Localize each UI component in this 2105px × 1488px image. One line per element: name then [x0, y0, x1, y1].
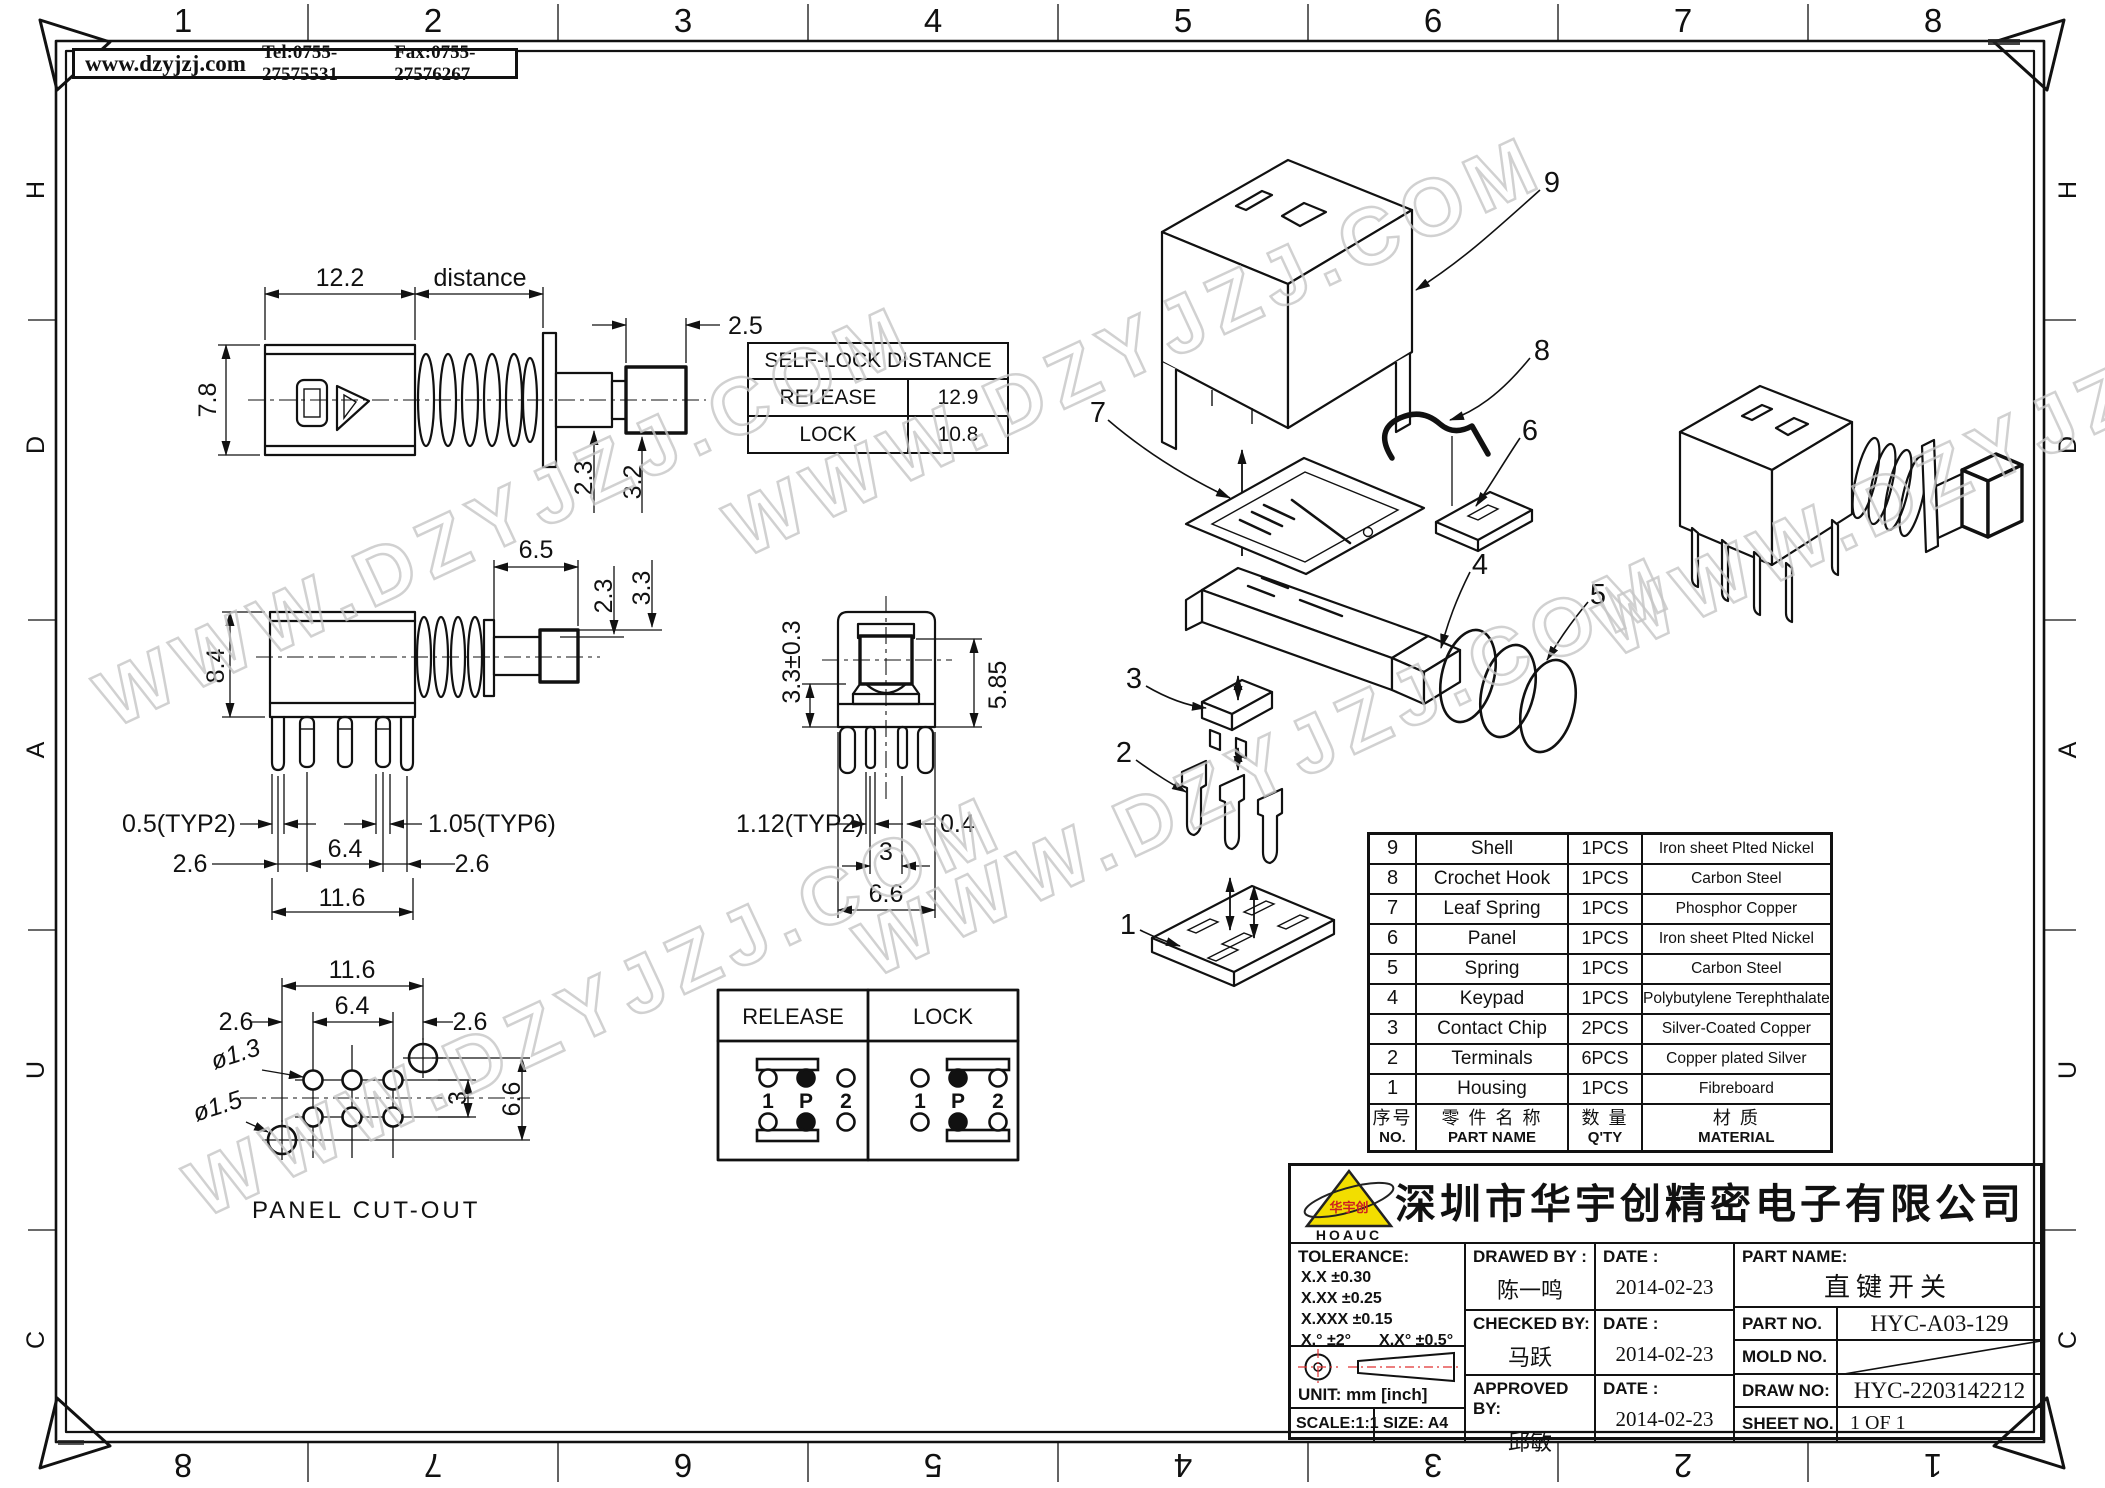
bom-no: 6 [1369, 924, 1417, 954]
approved-date: 2014-02-23 [1596, 1407, 1733, 1432]
dim-2-6-left: 2.6 [173, 850, 208, 878]
dim-1-12-typ2: 1.12(TYP2) [736, 810, 864, 838]
bom-name: Panel [1416, 924, 1568, 954]
callout-1: 1 [1120, 909, 1136, 941]
release-pin-2: 2 [840, 1090, 852, 1113]
tolerance-label: TOLERANCE: [1291, 1244, 1464, 1267]
bom-header-qty-cn: 数 量 [1569, 1107, 1641, 1129]
part-no-label-cell: PART NO. [1735, 1308, 1838, 1341]
bill-of-materials: 9Shell1PCSIron sheet Plted Nickel 8Croch… [1367, 832, 1833, 1153]
zone-left-c: C [22, 1331, 50, 1349]
part-no-label: PART NO. [1735, 1308, 1836, 1334]
bom-qty: 6PCS [1568, 1044, 1642, 1074]
bom-qty: 1PCS [1568, 954, 1642, 984]
zone-bottom-6: 6 [674, 1447, 692, 1484]
bom-material: Carbon Steel [1642, 954, 1831, 984]
bom-no: 4 [1369, 984, 1417, 1014]
bom-material: Iron sheet Plted Nickel [1642, 924, 1831, 954]
zone-right-d: D [2054, 436, 2082, 454]
circuit-state-table: RELEASE LOCK 1 P 2 1 P 2 [718, 990, 1018, 1160]
pc-dim-dia-1-5: ø1.5 [189, 1085, 245, 1127]
zone-top-5: 5 [1174, 2, 1192, 39]
draw-no-value: HYC-2203142212 [1838, 1375, 2041, 1408]
zone-top-1: 1 [174, 2, 192, 39]
zone-bottom-2: 2 [1674, 1447, 1692, 1484]
panel-cutout-title: PANEL CUT-OUT [252, 1197, 480, 1224]
bom-no: 8 [1369, 864, 1417, 894]
projection-symbols [1294, 1348, 1464, 1386]
fax: Fax:0755-27576267 [394, 42, 515, 86]
drawed-by-cell: DRAWED BY : 陈一鸣 [1466, 1244, 1596, 1311]
dim-0-5-typ2: 0.5(TYP2) [122, 810, 236, 838]
bom-name: Shell [1416, 834, 1568, 864]
unit-label: UNIT: mm [inch] [1298, 1385, 1427, 1405]
zone-left-h: H [22, 181, 50, 199]
approved-by-name: 邱敏 [1466, 1425, 1594, 1457]
checked-by-name: 马跃 [1466, 1340, 1594, 1372]
checked-by-cell: CHECKED BY: 马跃 [1466, 1311, 1596, 1376]
corner-mark-top-right [1994, 20, 2064, 90]
checked-date: 2014-02-23 [1596, 1342, 1733, 1367]
company-name: 深圳市华宇创精密电子有限公司 [1291, 1166, 2041, 1242]
table-row: 9Shell1PCSIron sheet Plted Nickel [1369, 834, 1832, 864]
bom-no: 9 [1369, 834, 1417, 864]
logo-cn-text: 华宇创 [1329, 1200, 1368, 1215]
mold-no-diagonal [1838, 1341, 2041, 1375]
bom-header-material-en: MATERIAL [1643, 1129, 1830, 1147]
callout-4: 4 [1472, 549, 1488, 581]
zone-bottom-4: 4 [1174, 1447, 1192, 1484]
part-name-label: PART NAME: [1735, 1244, 2041, 1267]
bom-header-row: 序号NO. 零 件 名 称PART NAME 数 量Q'TY 材 质MATERI… [1369, 1104, 1832, 1152]
tolerance-xx: X.X ±0.30 [1291, 1267, 1464, 1288]
bom-header-no-cn: 序号 [1370, 1107, 1415, 1129]
company-logo: 华宇创 HOAUC [1301, 1168, 1397, 1242]
zone-right-c: C [2054, 1331, 2082, 1349]
bom-material: Fibreboard [1642, 1074, 1831, 1104]
stamp-mark-top [1988, 39, 2020, 45]
part-name-value: 直键开关 [1735, 1267, 2041, 1304]
bom-name: Leaf Spring [1416, 894, 1568, 924]
bom-qty: 1PCS [1568, 864, 1642, 894]
bom-name: Terminals [1416, 1044, 1568, 1074]
table-row: 2Terminals6PCSCopper plated Silver [1369, 1044, 1832, 1074]
company-row: 华宇创 HOAUC 深圳市华宇创精密电子有限公司 [1291, 1166, 2041, 1244]
zone-bottom-1: 1 [1924, 1447, 1942, 1484]
dim-6-5: 6.5 [519, 536, 554, 564]
projection-cell: UNIT: mm [inch] [1291, 1347, 1466, 1409]
date-label: DATE : [1596, 1311, 1733, 1334]
sheet-no-label-cell: SHEET NO. [1735, 1408, 1838, 1441]
website-header-box: www.dzyjzj.com Tel:0755-27575531 Fax:075… [72, 48, 518, 79]
table-row: 4Keypad1PCSPolybutylene Terephthalate [1369, 984, 1832, 1014]
callout-2: 2 [1116, 737, 1132, 769]
mold-no-label: MOLD NO. [1735, 1341, 1836, 1367]
zone-right-h: H [2054, 181, 2082, 199]
self-lock-title: SELF-LOCK DISTANCE [748, 343, 1008, 379]
zone-right-a: A [2054, 741, 2082, 758]
assembled-view [1680, 386, 2022, 622]
bom-name: Contact Chip [1416, 1014, 1568, 1044]
bom-material: Silver-Coated Copper [1642, 1014, 1831, 1044]
table-row: 1Housing1PCSFibreboard [1369, 1074, 1832, 1104]
approved-by-cell: APPROVED BY: 邱敏 [1466, 1376, 1596, 1441]
draw-no-label: DRAW NO: [1735, 1375, 1836, 1401]
bom-header-name-en: PART NAME [1417, 1129, 1567, 1147]
dim-2-3b: 2.3 [590, 579, 618, 614]
zone-top-8: 8 [1924, 2, 1942, 39]
checked-date-cell: DATE : 2014-02-23 [1596, 1311, 1735, 1376]
pc-dim-6-4: 6.4 [335, 992, 370, 1020]
bom-name: Housing [1416, 1074, 1568, 1104]
bom-no: 2 [1369, 1044, 1417, 1074]
bom-material: Iron sheet Plted Nickel [1642, 834, 1831, 864]
zone-left-a: A [22, 741, 50, 758]
website-url: www.dzyjzj.com [85, 51, 246, 77]
release-row-label: RELEASE [748, 379, 908, 416]
date-label: DATE : [1596, 1244, 1733, 1267]
drawed-date: 2014-02-23 [1596, 1275, 1733, 1300]
bom-material: Carbon Steel [1642, 864, 1831, 894]
bom-qty: 1PCS [1568, 894, 1642, 924]
bom-header-material-cn: 材 质 [1643, 1107, 1830, 1129]
scale-cell: SCALE:1:1 [1291, 1409, 1375, 1441]
bom-material: Phosphor Copper [1642, 894, 1831, 924]
bom-no: 1 [1369, 1074, 1417, 1104]
drawed-date-cell: DATE : 2014-02-23 [1596, 1244, 1735, 1311]
dim-12-2: 12.2 [316, 264, 365, 292]
lock-row-label: LOCK [748, 416, 908, 453]
lock-pin-p: P [951, 1090, 965, 1113]
pc-dim-dia-1-3: ø1.3 [207, 1033, 263, 1075]
table-row: 5Spring1PCSCarbon Steel [1369, 954, 1832, 984]
tolerance-cell: TOLERANCE: X.X ±0.30 X.XX ±0.25 X.XXX ±0… [1291, 1244, 1466, 1347]
zone-bottom-3: 3 [1424, 1447, 1442, 1484]
zone-left-d: D [22, 436, 50, 454]
part-name-cell: PART NAME: 直键开关 [1735, 1244, 2041, 1308]
checked-by-label: CHECKED BY: [1466, 1311, 1594, 1334]
dim-0-4: 0.4 [940, 810, 975, 838]
approved-by-label: APPROVED BY: [1466, 1376, 1594, 1419]
dim-2-5: 2.5 [728, 312, 763, 340]
release-label: RELEASE [742, 1004, 844, 1029]
release-pin-p: P [799, 1090, 813, 1113]
dim-5-85: 5.85 [984, 661, 1012, 710]
bom-no: 7 [1369, 894, 1417, 924]
zone-top-2: 2 [424, 2, 442, 39]
bom-qty: 2PCS [1568, 1014, 1642, 1044]
table-row: 8Crochet Hook1PCSCarbon Steel [1369, 864, 1832, 894]
dim-6-6: 6.6 [869, 880, 904, 908]
bom-header-name-cn: 零 件 名 称 [1417, 1107, 1567, 1129]
release-pin-1: 1 [762, 1090, 774, 1113]
dim-distance: distance [433, 264, 526, 292]
dim-1-05-typ6: 1.05(TYP6) [428, 810, 556, 838]
pc-dim-3: 3 [444, 1091, 472, 1105]
sheet-no-label: SHEET NO. [1735, 1408, 1836, 1434]
zone-bottom-8: 8 [174, 1447, 192, 1484]
pc-dim-6-6: 6.6 [498, 1082, 526, 1117]
stamp-mark-bottom [58, 1440, 84, 1445]
bom-qty: 1PCS [1568, 984, 1642, 1014]
draw-no-label-cell: DRAW NO: [1735, 1375, 1838, 1408]
tolerance-xxxx: X.XXX ±0.15 [1291, 1309, 1464, 1330]
sheet-no-value: 1 OF 1 [1838, 1408, 2041, 1441]
date-label: DATE : [1596, 1376, 1733, 1399]
zone-bottom-5: 5 [924, 1447, 942, 1484]
telephone: Tel:0755-27575531 [262, 42, 378, 86]
bom-header-qty-en: Q'TY [1569, 1129, 1641, 1147]
callout-8: 8 [1534, 335, 1550, 367]
dim-11-6: 11.6 [319, 884, 366, 912]
lock-label: LOCK [913, 1004, 973, 1029]
callout-6: 6 [1522, 415, 1538, 447]
zone-top-4: 4 [924, 2, 942, 39]
bom-qty: 1PCS [1568, 1074, 1642, 1104]
lock-pin-1: 1 [914, 1090, 926, 1113]
drawed-by-name: 陈一鸣 [1466, 1273, 1594, 1305]
zone-left-u: U [22, 1061, 50, 1079]
table-row: 3Contact Chip2PCSSilver-Coated Copper [1369, 1014, 1832, 1044]
bom-material: Copper plated Silver [1642, 1044, 1831, 1074]
table-row: 6Panel1PCSIron sheet Plted Nickel [1369, 924, 1832, 954]
callout-3: 3 [1126, 663, 1142, 695]
self-lock-distance-table: SELF-LOCK DISTANCE RELEASE 12.9 LOCK 10.… [747, 342, 1009, 454]
bom-material: Polybutylene Terephthalate [1642, 984, 1831, 1014]
bom-qty: 1PCS [1568, 924, 1642, 954]
side-view-pins-drawing: 6.5 2.3 3.3 8.4 0.5(TYP2) 1.05(TYP6) 2.6… [122, 536, 662, 920]
side-view-drawing: 12.2 distance 2.5 7.8 2.3 3.2 [194, 264, 763, 513]
drawing-sheet: 1 2 3 4 5 6 7 8 8 7 6 5 4 3 2 1 H D A U … [0, 0, 2105, 1488]
zone-top-7: 7 [1674, 2, 1692, 39]
zone-bottom-7: 7 [424, 1447, 442, 1484]
approved-date-cell: DATE : 2014-02-23 [1596, 1376, 1735, 1441]
pc-dim-11-6: 11.6 [329, 956, 376, 984]
drawed-by-label: DRAWED BY : [1466, 1244, 1594, 1267]
bom-header-no-en: NO. [1370, 1129, 1415, 1147]
dim-8-4: 8.4 [202, 649, 230, 684]
zone-top-6: 6 [1424, 2, 1442, 39]
bom-name: Keypad [1416, 984, 1568, 1014]
mold-no-value-cell [1838, 1341, 2041, 1375]
dim-7-8: 7.8 [194, 383, 222, 418]
table-row: 7Leaf Spring1PCSPhosphor Copper [1369, 894, 1832, 924]
part-no-value: HYC-A03-129 [1838, 1308, 2041, 1341]
release-row-value: 12.9 [908, 379, 1008, 416]
mold-no-label-cell: MOLD NO. [1735, 1341, 1838, 1375]
pc-dim-2-6-left: 2.6 [219, 1008, 254, 1036]
dim-3-3: 3.3 [628, 571, 656, 606]
logo-en-text: HOAUC [1316, 1227, 1382, 1242]
callout-5: 5 [1590, 579, 1606, 611]
title-block: 华宇创 HOAUC 深圳市华宇创精密电子有限公司 TOLERANCE: X.X … [1288, 1163, 2043, 1440]
callout-7: 7 [1090, 397, 1106, 429]
bom-name: Crochet Hook [1416, 864, 1568, 894]
bom-no: 5 [1369, 954, 1417, 984]
zone-top-3: 3 [674, 2, 692, 39]
front-view-drawing: 3.3±0.3 5.85 1.12(TYP2) 0.4 3 6.6 [736, 596, 1012, 918]
bom-no: 3 [1369, 1014, 1417, 1044]
zone-right-u: U [2054, 1061, 2082, 1079]
callout-9: 9 [1544, 167, 1560, 199]
dim-2-6-right: 2.6 [455, 850, 490, 878]
size-cell: SIZE: A4 [1375, 1409, 1466, 1441]
panel-cutout-drawing: 11.6 2.6 6.4 2.6 ø1.3 ø1.5 3 6.6 PANEL C… [189, 956, 530, 1224]
dim-3-2: 3.2 [619, 465, 647, 500]
bom-qty: 1PCS [1568, 834, 1642, 864]
dim-6-4: 6.4 [328, 835, 363, 863]
dim-3-3-tol: 3.3±0.3 [778, 620, 806, 703]
pc-dim-2-6-right: 2.6 [453, 1008, 488, 1036]
dim-3: 3 [879, 838, 893, 866]
lock-row-value: 10.8 [908, 416, 1008, 453]
dim-2-3: 2.3 [570, 461, 598, 496]
bom-name: Spring [1416, 954, 1568, 984]
lock-pin-2: 2 [992, 1090, 1004, 1113]
tolerance-xxx: X.XX ±0.25 [1291, 1288, 1464, 1309]
